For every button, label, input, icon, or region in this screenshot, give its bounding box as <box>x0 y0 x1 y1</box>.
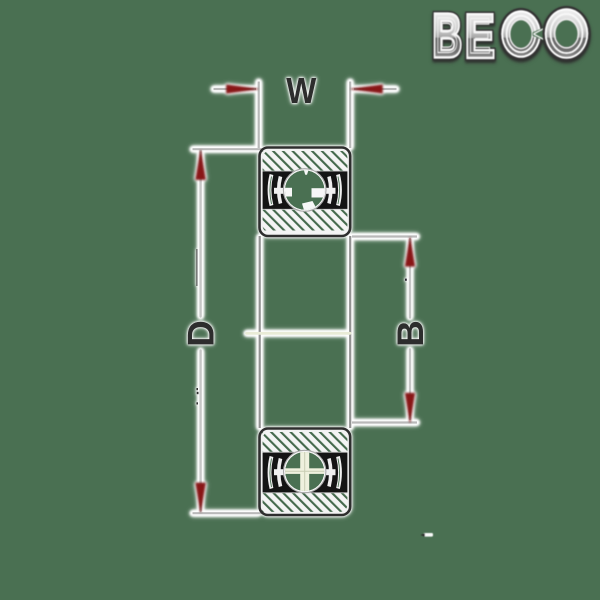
svg-text:D: D <box>181 320 222 347</box>
svg-text:B: B <box>436 7 459 63</box>
svg-text:W: W <box>286 71 316 111</box>
svg-text:E: E <box>468 10 491 65</box>
svg-text:B: B <box>390 320 431 347</box>
